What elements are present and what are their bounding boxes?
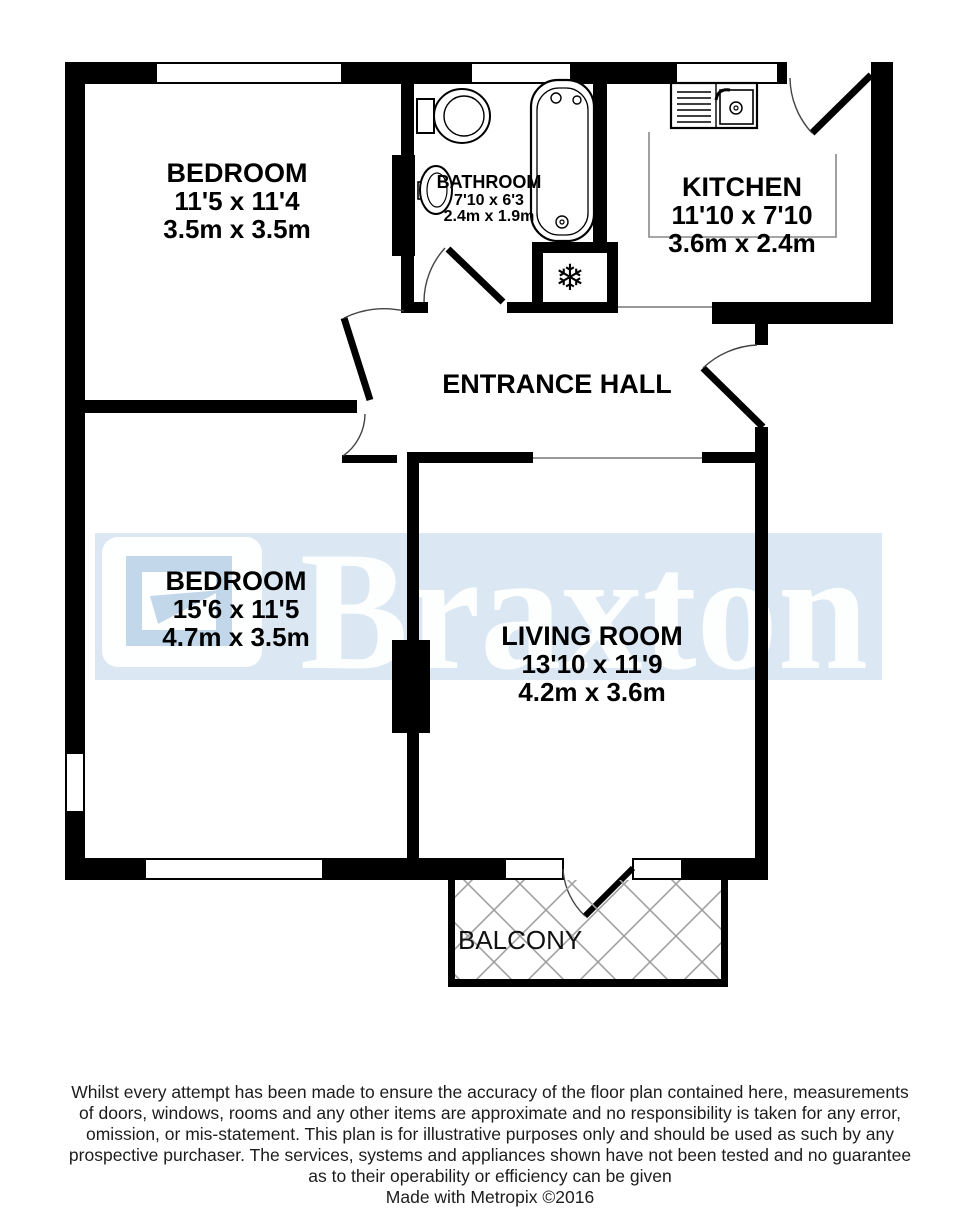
bedroom2-door	[343, 414, 365, 456]
bedroom1-imperial: 11'5 x 11'4	[174, 186, 300, 216]
window	[66, 753, 84, 812]
bedroom1-label: BEDROOM	[167, 158, 308, 188]
bathroom-metric: 2.4m x 1.9m	[444, 208, 535, 225]
window	[676, 63, 778, 83]
wall-segment	[755, 427, 768, 858]
kitchen-door	[790, 75, 871, 133]
disclaimer-line: Whilst every attempt has been made to en…	[0, 1082, 980, 1103]
wall-segment	[65, 400, 357, 413]
kitchen-metric: 3.6m x 2.4m	[668, 228, 815, 258]
toilet-icon	[417, 89, 490, 143]
balcony-wall	[448, 979, 728, 987]
bathtub-icon	[531, 80, 594, 241]
wall-segment	[65, 62, 85, 873]
balcony-label: BALCONY	[458, 925, 582, 955]
balcony-wall	[721, 876, 728, 987]
disclaimer-line: prospective purchaser. The services, sys…	[0, 1145, 980, 1166]
snowflake-icon: ❄	[555, 258, 585, 299]
disclaimer-line: of doors, windows, rooms and any other i…	[0, 1103, 980, 1124]
wall-segment	[532, 302, 618, 313]
balcony-wall	[448, 876, 455, 987]
bathroom-imperial: 7'10 x 6'3	[454, 192, 524, 209]
bedroom1-metric: 3.5m x 3.5m	[163, 214, 310, 244]
bedroom2-metric: 4.7m x 3.5m	[162, 622, 309, 652]
front-door	[703, 345, 763, 427]
kitchen-sink-icon	[671, 83, 757, 128]
door-stub	[342, 455, 397, 463]
floorplan-drawing: Braxton	[0, 0, 980, 1060]
kitchen-imperial: 11'10 x 7'10	[671, 200, 812, 230]
wall-segment	[712, 302, 893, 324]
wall-segment	[871, 62, 893, 324]
kitchen-label: KITCHEN	[682, 172, 802, 202]
disclaimer-line: omission, or mis-statement. This plan is…	[0, 1124, 980, 1145]
living-room-imperial: 13'10 x 11'9	[521, 649, 662, 679]
disclaimer: Whilst every attempt has been made to en…	[0, 1082, 980, 1208]
window	[145, 859, 323, 879]
living-room-metric: 4.2m x 3.6m	[518, 677, 665, 707]
freezer-cupboard: ❄	[555, 258, 585, 299]
wall-segment	[507, 302, 532, 313]
metropix-credit: Made with Metropix ©2016	[0, 1187, 980, 1208]
bathroom-door	[424, 248, 503, 302]
floorplan-page: Braxton	[0, 0, 980, 1214]
disclaimer-line: as to their operability or efficiency ca…	[0, 1166, 980, 1187]
wall-segment	[702, 452, 768, 463]
bedroom1-door	[344, 309, 404, 400]
wall-segment	[407, 452, 533, 463]
window	[633, 859, 682, 879]
window	[505, 859, 563, 879]
wall-segment	[755, 312, 768, 345]
entrance-hall-label: ENTRANCE HALL	[442, 369, 672, 399]
window	[156, 63, 342, 83]
wall-segment	[532, 242, 618, 253]
living-room-label: LIVING ROOM	[501, 621, 683, 651]
bedroom2-label: BEDROOM	[166, 566, 307, 596]
wall-segment	[414, 302, 428, 313]
chimney-pier	[392, 155, 415, 256]
bedroom2-imperial: 15'6 x 11'5	[173, 594, 300, 624]
chimney-pier	[392, 640, 430, 733]
bathroom-label: BATHROOM	[437, 172, 542, 192]
